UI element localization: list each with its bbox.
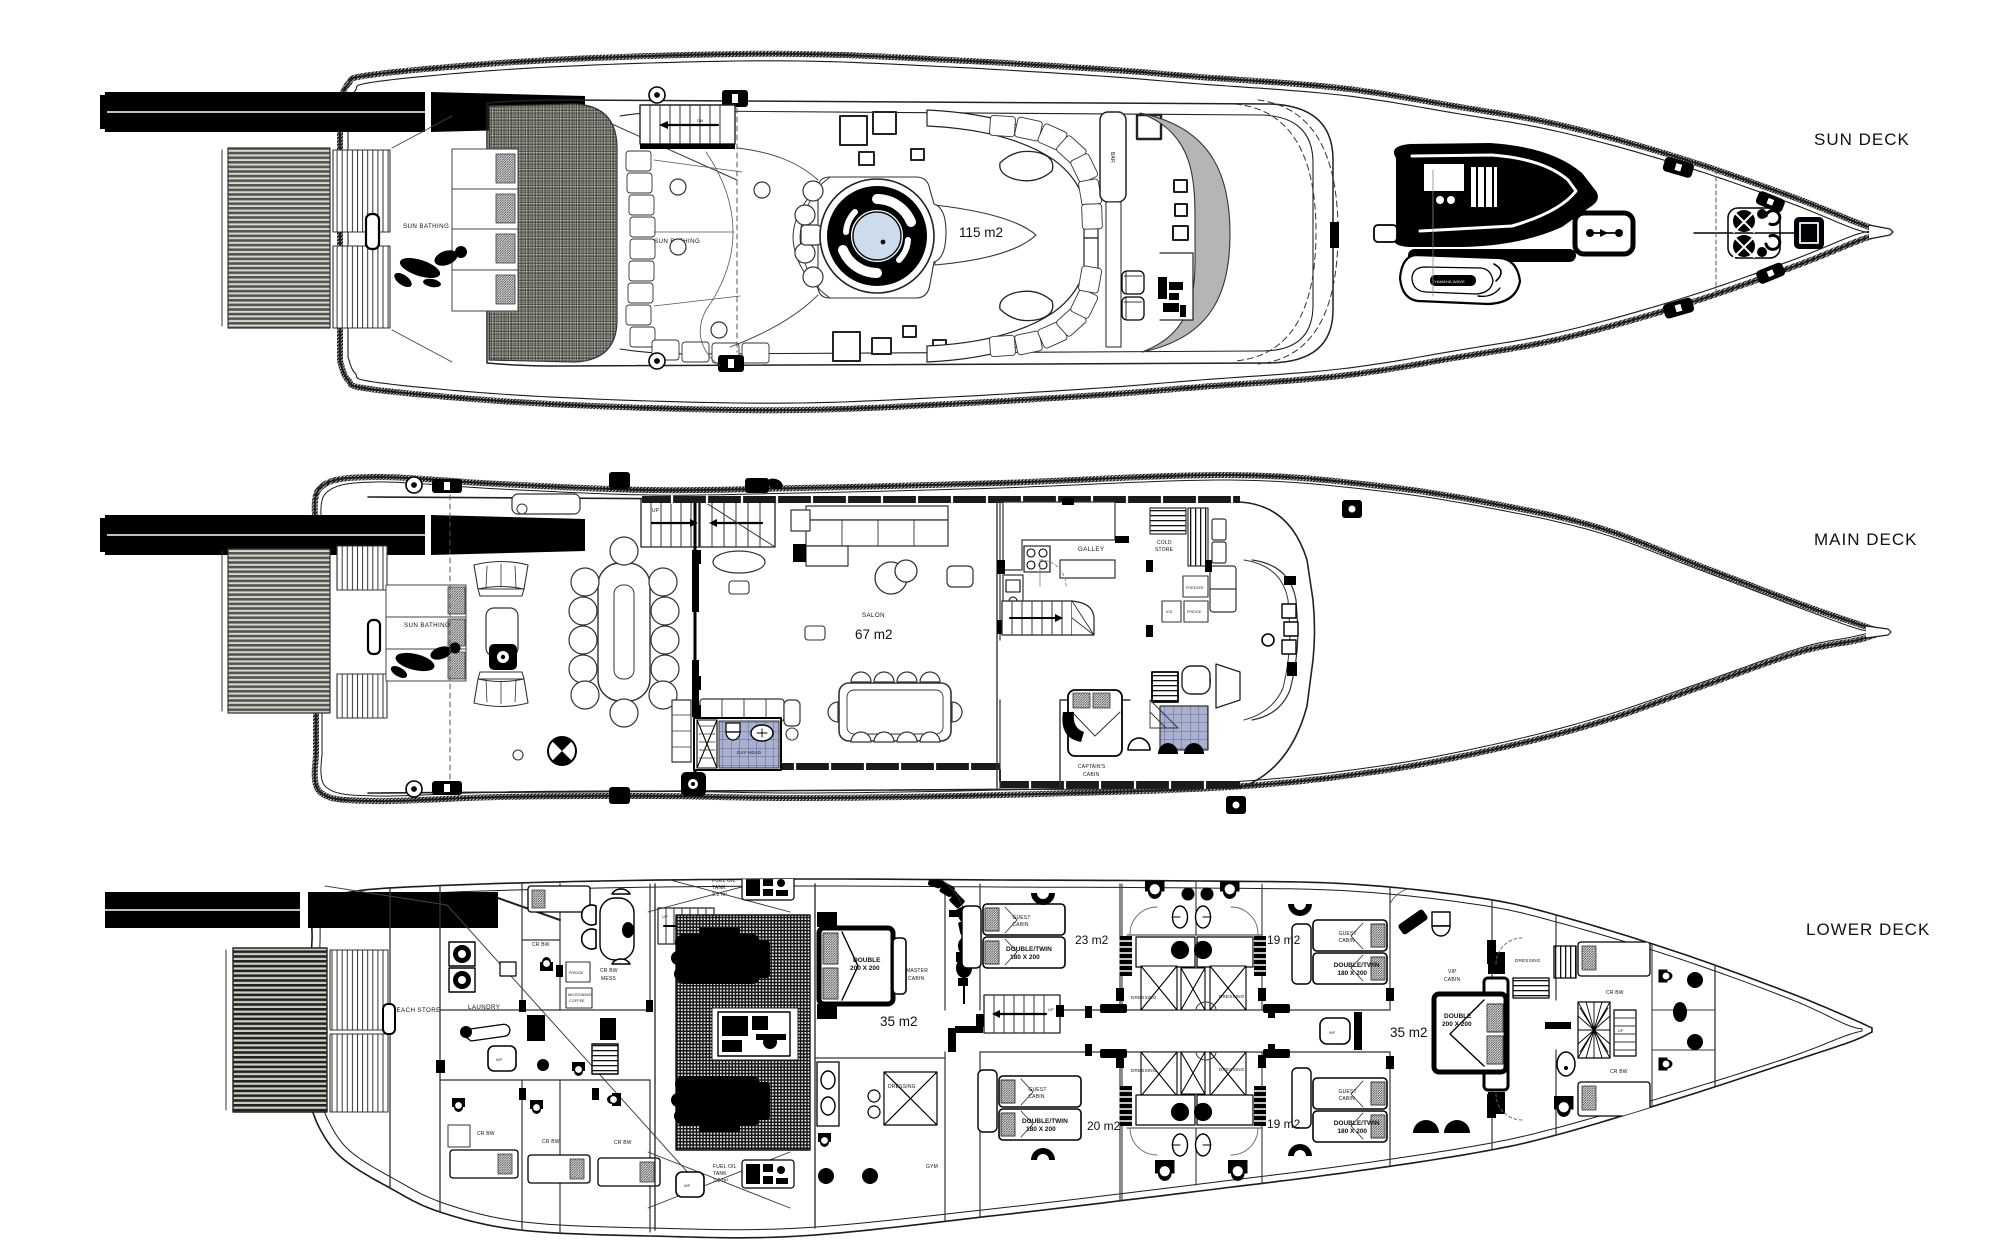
svg-text:STORE: STORE (1155, 547, 1174, 553)
svg-text:COLD: COLD (1157, 540, 1172, 546)
svg-text:BAR: BAR (1109, 152, 1115, 163)
svg-text:CABIN: CABIN (1028, 1094, 1044, 1100)
svg-text:GALLEY: GALLEY (1078, 546, 1104, 553)
svg-text:DOUBLE/TWIN: DOUBLE/TWIN (1334, 962, 1380, 969)
svg-text:200 X 200: 200 X 200 (1442, 1021, 1472, 1028)
svg-text:CR BW: CR BW (477, 1131, 495, 1137)
svg-text:35 m2: 35 m2 (880, 1014, 918, 1029)
svg-text:CABIN: CABIN (1339, 1096, 1355, 1102)
svg-text:DAY HEAD: DAY HEAD (737, 750, 762, 755)
svg-text:35 m2: 35 m2 (1390, 1025, 1428, 1040)
svg-text:CR BW: CR BW (532, 942, 550, 948)
svg-text:TANK: TANK (713, 1171, 727, 1177)
svg-text:CABIN: CABIN (1012, 922, 1028, 928)
svg-text:GYM: GYM (926, 1164, 938, 1170)
svg-text:115 m2: 115 m2 (959, 225, 1003, 240)
svg-text:67 m2: 67 m2 (855, 627, 893, 642)
svg-text:GUEST: GUEST (1339, 931, 1357, 937)
svg-text:UP: UP (662, 914, 668, 919)
svg-text:DRESSING: DRESSING (888, 1084, 916, 1090)
svg-text:WF: WF (1329, 1030, 1336, 1035)
svg-text:23 m2: 23 m2 (1075, 933, 1109, 947)
svg-text:UP: UP (1048, 1007, 1054, 1012)
svg-text:WF: WF (684, 1183, 691, 1188)
svg-text:VIP: VIP (1448, 969, 1457, 975)
svg-text:LAUNDRY: LAUNDRY (468, 1004, 500, 1011)
svg-text:WF: WF (496, 1057, 503, 1062)
svg-text:DOUBLE/TWIN: DOUBLE/TWIN (1022, 1118, 1068, 1125)
svg-text:FRIDGE: FRIDGE (569, 971, 584, 975)
svg-text:MASTER: MASTER (906, 968, 928, 974)
svg-text:CABIN: CABIN (908, 976, 924, 982)
svg-text:180 X 200: 180 X 200 (1337, 970, 1367, 977)
svg-text:CAPTAIN'S: CAPTAIN'S (1078, 764, 1106, 770)
svg-text:DOUBLE/TWIN: DOUBLE/TWIN (1006, 946, 1052, 953)
svg-text:DRESSING: DRESSING (1515, 958, 1541, 963)
svg-text:180 X 200: 180 X 200 (1026, 1126, 1056, 1133)
svg-text:CR BW: CR BW (614, 1140, 632, 1146)
svg-text:ICE: ICE (1166, 610, 1173, 614)
svg-text:CABIN: CABIN (1339, 938, 1355, 944)
svg-text:180 X 200: 180 X 200 (1010, 954, 1040, 961)
svg-text:MICROWAVE: MICROWAVE (568, 993, 592, 997)
svg-text:UP: UP (652, 508, 660, 514)
svg-text:DRESSING: DRESSING (1219, 1067, 1245, 1072)
svg-text:GUEST: GUEST (1339, 1089, 1357, 1095)
svg-text:200 X 200: 200 X 200 (850, 965, 880, 972)
svg-text:DRESSING: DRESSING (1131, 995, 1157, 1000)
svg-text:GUEST: GUEST (1012, 915, 1030, 921)
svg-text:DN: DN (697, 118, 703, 123)
svg-text:19 m2: 19 m2 (1267, 1117, 1301, 1131)
svg-text:DRESSING: DRESSING (1131, 1068, 1157, 1073)
svg-text:CR BW: CR BW (542, 1139, 560, 1145)
svg-text:BEACH STORE: BEACH STORE (392, 1007, 441, 1014)
svg-text:CABIN: CABIN (1083, 772, 1099, 778)
svg-text:SUN BATHING: SUN BATHING (403, 223, 449, 230)
svg-text:SUN BATHING: SUN BATHING (404, 622, 450, 629)
svg-text:DRESSING: DRESSING (1219, 994, 1245, 999)
svg-text:FREEZER: FREEZER (1186, 586, 1204, 590)
svg-text:FUEL OIL: FUEL OIL (713, 1164, 737, 1170)
svg-text:YAMAHA WAVE: YAMAHA WAVE (1434, 279, 1465, 284)
svg-text:CABIN: CABIN (1444, 977, 1460, 983)
svg-text:CR BW: CR BW (1610, 1069, 1628, 1075)
svg-text:CR BW: CR BW (600, 968, 618, 974)
svg-text:SALON: SALON (862, 612, 885, 619)
svg-text:CR BW: CR BW (1606, 990, 1624, 996)
svg-text:19 m2: 19 m2 (1267, 933, 1301, 947)
svg-text:SUN DECK: SUN DECK (1814, 130, 1910, 149)
svg-text:DOUBLE: DOUBLE (853, 957, 881, 964)
svg-text:LOWER DECK: LOWER DECK (1806, 920, 1930, 939)
svg-text:20 m2: 20 m2 (1087, 1119, 1121, 1133)
svg-text:FRIDGE: FRIDGE (1187, 610, 1202, 614)
svg-text:DOUBLE: DOUBLE (1444, 1013, 1472, 1020)
svg-text:GUEST: GUEST (1028, 1087, 1046, 1093)
svg-text:DOUBLE/TWIN: DOUBLE/TWIN (1334, 1120, 1380, 1127)
svg-text:MAIN DECK: MAIN DECK (1814, 530, 1917, 549)
svg-text:UP: UP (1618, 1029, 1624, 1033)
svg-text:TANK: TANK (712, 885, 726, 891)
svg-text:COFFEE: COFFEE (569, 999, 585, 1003)
svg-text:180 X 200: 180 X 200 (1337, 1128, 1367, 1135)
svg-text:MESS: MESS (601, 976, 616, 982)
